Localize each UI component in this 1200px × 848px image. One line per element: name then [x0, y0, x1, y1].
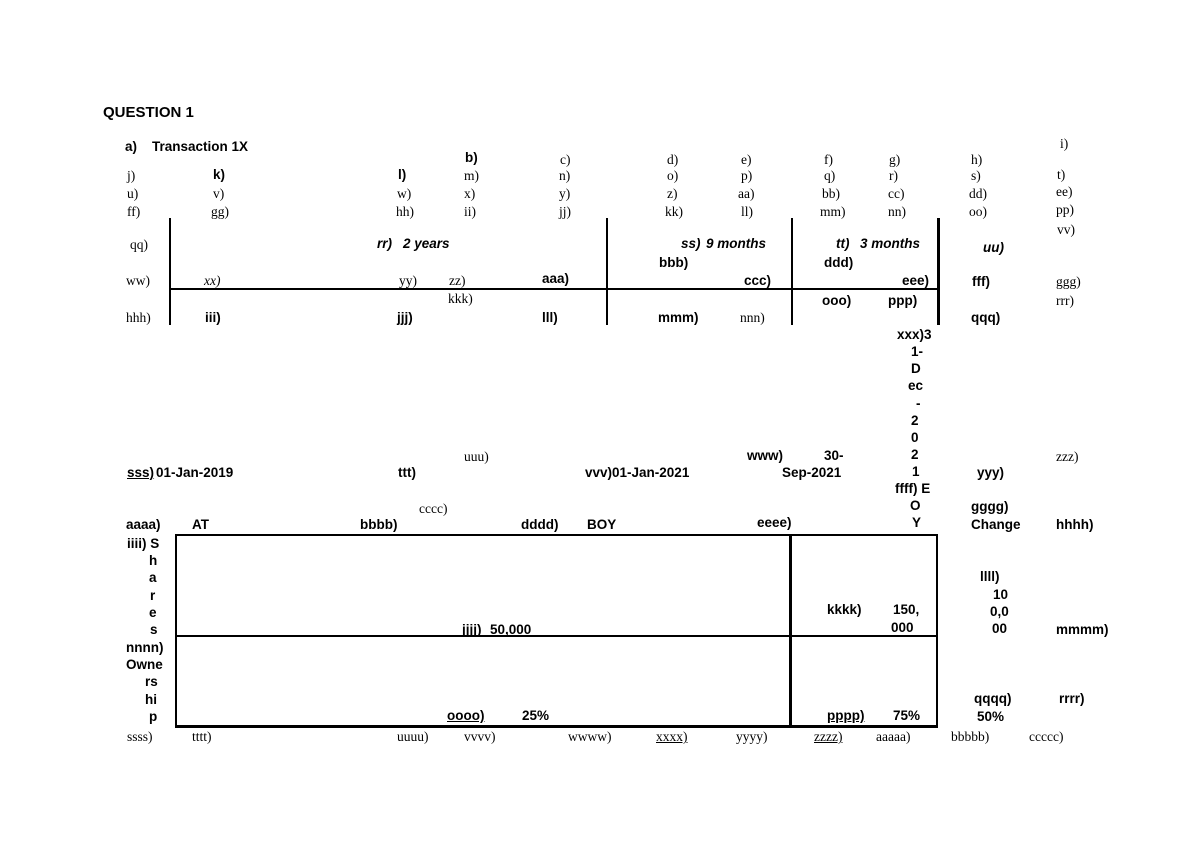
label-zzz: zzz) [1056, 449, 1078, 465]
label-tt: tt) [836, 236, 850, 251]
label-25: 25% [522, 708, 549, 723]
label-1: 1 [912, 464, 920, 479]
label-bb: bb) [822, 186, 840, 202]
label-aaaaa: aaaaa) [876, 729, 910, 745]
label-2: 2 [911, 447, 919, 462]
label-r: r) [889, 168, 898, 184]
label-ww: ww) [126, 273, 150, 289]
label-9-months: 9 months [706, 236, 766, 251]
label-i: i) [1060, 136, 1068, 152]
label-ee: ee) [1056, 184, 1072, 200]
timeline-tick-3 [791, 218, 793, 325]
label-vv: vv) [1057, 222, 1075, 238]
label-000: 000 [891, 620, 914, 635]
label-sss: sss) [127, 465, 154, 480]
label-s: s) [971, 168, 981, 184]
label-qqq: qqq) [971, 310, 1000, 325]
label-10: 10 [993, 587, 1008, 602]
label-w: w) [397, 186, 411, 202]
timeline-tick-2 [606, 218, 608, 325]
table-border-right [936, 534, 938, 728]
label-ppp: ppp) [888, 293, 917, 308]
label-yyyy: yyyy) [736, 729, 768, 745]
label-owne: Owne [126, 657, 163, 672]
label-nnn: nnn) [740, 310, 765, 326]
label-g: g) [889, 152, 900, 168]
label-a: a [149, 570, 157, 585]
label-ccc: ccc) [744, 273, 771, 288]
label-jjj: jjj) [397, 310, 413, 325]
label-pp: pp) [1056, 202, 1074, 218]
label-iii: iii) [205, 310, 221, 325]
label-uu: uu) [983, 240, 1004, 255]
label-yyy: yyy) [977, 465, 1004, 480]
label-ssss: ssss) [127, 729, 153, 745]
label-dddd: dddd) [521, 517, 558, 532]
label-3-months: 3 months [860, 236, 920, 251]
label-item: - [916, 396, 921, 411]
label-aaa: aaa) [542, 271, 569, 286]
label-ii: ii) [464, 204, 476, 220]
label-fff: fff) [972, 274, 990, 289]
label-qq: qq) [130, 237, 148, 253]
label-e: e [149, 605, 157, 620]
label-rrrr: rrrr) [1059, 691, 1085, 706]
label-h: h [149, 553, 157, 568]
label-hhh: hhh) [126, 310, 151, 326]
label-z: z) [667, 186, 678, 202]
label-pppp: pppp) [827, 708, 864, 723]
label-q: q) [824, 168, 835, 184]
label-ll: ll) [741, 204, 753, 220]
table-border-left [175, 534, 177, 728]
label-nnnn: nnnn) [126, 640, 163, 655]
label-dd: dd) [969, 186, 987, 202]
label-wwww: wwww) [568, 729, 612, 745]
label-hi: hi [145, 692, 157, 707]
label-qqqq: qqqq) [974, 691, 1011, 706]
label-www: www) [747, 448, 783, 463]
label-oooo: oooo) [447, 708, 484, 723]
timeline-axis [169, 288, 940, 290]
label-uuu: uuu) [464, 449, 489, 465]
label-ddd: ddd) [824, 255, 853, 270]
label-75: 75% [893, 708, 920, 723]
label-ggg: ggg) [1056, 274, 1081, 290]
label-lll: lll) [542, 310, 558, 325]
label-k: k) [213, 167, 225, 182]
label-r: r [150, 588, 155, 603]
label-150: 150, [893, 602, 919, 617]
label-change: Change [971, 517, 1021, 532]
label-zz: zz) [449, 273, 465, 289]
label-aa: aa) [738, 186, 754, 202]
label-2-years: 2 years [403, 236, 450, 251]
label-xxx-3: xxx)3 [897, 327, 932, 342]
label-hh: hh) [396, 204, 414, 220]
label-bbb: bbb) [659, 255, 688, 270]
label-vvvv: vvvv) [464, 729, 496, 745]
label-eee: eee) [902, 273, 929, 288]
label-ss: ss) [681, 236, 701, 251]
label-iiii-s: iiii) S [127, 536, 159, 551]
label-v: v) [213, 186, 224, 202]
label-zzzz: zzzz) [814, 729, 842, 745]
label-u: u) [127, 186, 138, 202]
label-p: p [149, 709, 157, 724]
label-y: Y [912, 515, 921, 530]
label-gggg: gggg) [971, 499, 1008, 514]
label-sep-2021: Sep-2021 [782, 465, 841, 480]
page-title: QUESTION 1 [103, 104, 194, 121]
label-30: 30- [824, 448, 844, 463]
label-yy: yy) [399, 273, 417, 289]
label-rs: rs [145, 674, 158, 689]
label-hhhh: hhhh) [1056, 517, 1093, 532]
label-vvv-01-jan-2021: vvv)01-Jan-2021 [585, 465, 689, 480]
label-gg: gg) [211, 204, 229, 220]
label-ccccc: ccccc) [1029, 729, 1063, 745]
page: QUESTION 1 a)Transaction 1Xb)c)d)e)f)g)h… [0, 0, 1200, 848]
label-d: D [911, 361, 921, 376]
label-rrr: rrr) [1056, 293, 1074, 309]
label-mmm: mmm) [658, 310, 699, 325]
label-tttt: tttt) [192, 729, 212, 745]
label-y: y) [559, 186, 570, 202]
label-o: o) [667, 168, 678, 184]
label-aaaa: aaaa) [126, 517, 161, 532]
label-oo: oo) [969, 204, 987, 220]
label-kkkk: kkkk) [827, 602, 862, 617]
label-x: x) [464, 186, 475, 202]
label-ttt: ttt) [398, 465, 416, 480]
label-rr: rr) [377, 236, 392, 251]
label-0: 0 [911, 430, 919, 445]
label-ffff-e: ffff) E [895, 481, 930, 496]
label-t: t) [1057, 167, 1065, 183]
label-n: n) [559, 168, 570, 184]
label-2: 2 [911, 413, 919, 428]
label-f: f) [824, 152, 833, 168]
label-m: m) [464, 168, 479, 184]
label-mm: mm) [820, 204, 846, 220]
label-p: p) [741, 168, 752, 184]
label-s: s [150, 622, 158, 637]
table-border-bottom [175, 725, 938, 728]
label-bbbb: bbbb) [360, 517, 397, 532]
label-00: 00 [992, 621, 1007, 636]
label-j: j) [127, 168, 135, 184]
label-0-0: 0,0 [990, 604, 1009, 619]
label-kkk: kkk) [448, 291, 473, 307]
label-llll: llll) [980, 569, 1000, 584]
table-divider-vertical [789, 534, 792, 728]
table-border-top [175, 534, 938, 536]
label-kk: kk) [665, 204, 683, 220]
table-divider-horizontal [175, 635, 938, 637]
label-ec: ec [908, 378, 923, 393]
label-cc: cc) [888, 186, 904, 202]
label-boy: BOY [587, 517, 616, 532]
label-xx: xx) [204, 273, 220, 289]
label-1: 1- [911, 344, 923, 359]
label-b: b) [465, 150, 478, 165]
label-eeee: eeee) [757, 515, 792, 530]
label-e: e) [741, 152, 752, 168]
label-mmmm: mmmm) [1056, 622, 1109, 637]
label-o: O [910, 498, 921, 513]
label-transaction-1x: Transaction 1X [152, 139, 248, 154]
label-c: c) [560, 152, 571, 168]
label-xxxx: xxxx) [656, 729, 688, 745]
label-01-jan-2019: 01-Jan-2019 [156, 465, 233, 480]
label-cccc: cccc) [419, 501, 447, 517]
label-d: d) [667, 152, 678, 168]
label-bbbbb: bbbbb) [951, 729, 989, 745]
label-uuuu: uuuu) [397, 729, 429, 745]
label-jj: jj) [559, 204, 571, 220]
label-ooo: ooo) [822, 293, 851, 308]
label-ff: ff) [127, 204, 140, 220]
label-50: 50% [977, 709, 1004, 724]
timeline-tick-4 [937, 218, 940, 325]
label-a: a) [125, 139, 137, 154]
label-nn: nn) [888, 204, 906, 220]
label-at: AT [192, 517, 209, 532]
label-l: l) [398, 167, 406, 182]
timeline-tick-1 [169, 218, 171, 325]
label-h: h) [971, 152, 982, 168]
